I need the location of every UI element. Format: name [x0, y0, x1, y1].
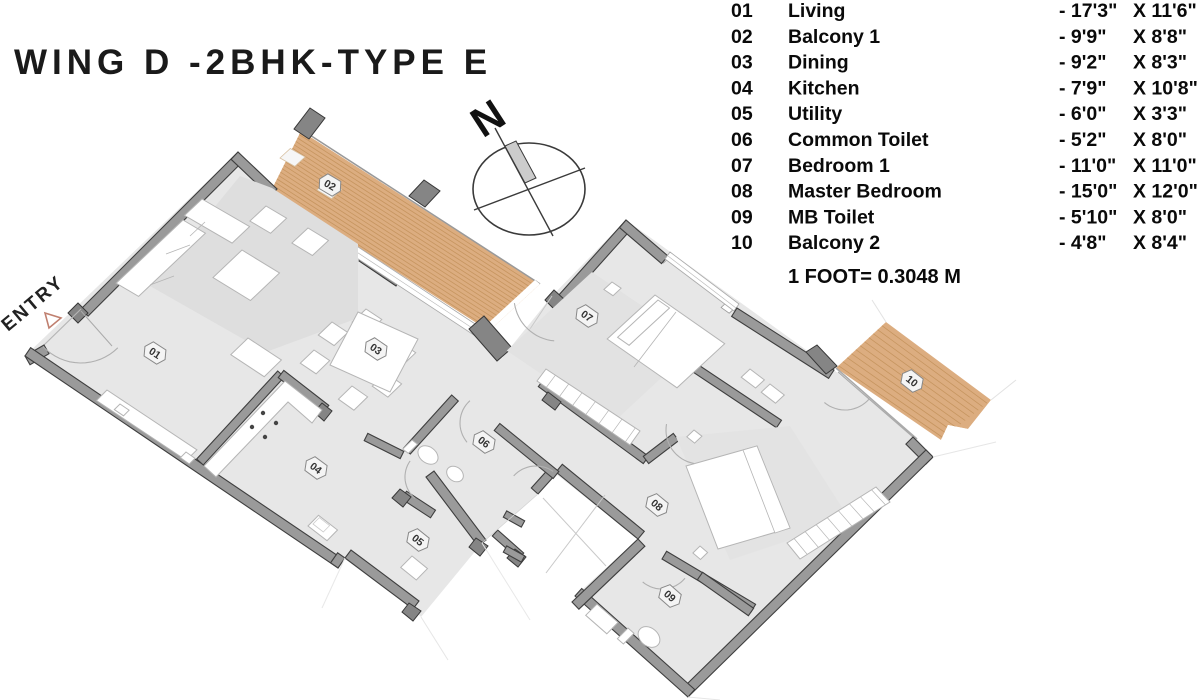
svg-text:X 8'8": X 8'8"	[1133, 26, 1187, 48]
svg-text:Dining: Dining	[788, 52, 849, 74]
svg-text:Balcony 2: Balcony 2	[788, 232, 880, 254]
svg-text:- 9'9": - 9'9"	[1059, 26, 1106, 48]
svg-text:Master Bedroom: Master Bedroom	[788, 181, 942, 203]
svg-text:03: 03	[731, 52, 753, 74]
svg-text:1 FOOT= 0.3048 M: 1 FOOT= 0.3048 M	[788, 266, 961, 288]
svg-text:08: 08	[731, 181, 753, 203]
svg-text:04: 04	[731, 77, 753, 99]
svg-text:Living: Living	[788, 0, 845, 22]
svg-text:WING D -2BHK-TYPE E: WING D -2BHK-TYPE E	[14, 43, 492, 82]
svg-text:X 8'3": X 8'3"	[1133, 52, 1187, 74]
svg-text:MB Toilet: MB Toilet	[788, 206, 875, 228]
svg-text:- 6'0": - 6'0"	[1059, 103, 1106, 125]
svg-text:X 11'0": X 11'0"	[1133, 155, 1197, 177]
svg-text:07: 07	[731, 155, 753, 177]
svg-text:Kitchen: Kitchen	[788, 77, 860, 99]
svg-text:X 12'0": X 12'0"	[1133, 181, 1198, 203]
svg-text:10: 10	[731, 232, 753, 254]
svg-text:- 5'2": - 5'2"	[1059, 129, 1106, 151]
svg-text:X 11'6": X 11'6"	[1133, 0, 1197, 22]
svg-text:05: 05	[731, 103, 753, 125]
svg-text:Bedroom 1: Bedroom 1	[788, 155, 890, 177]
svg-text:- 9'2": - 9'2"	[1059, 52, 1106, 74]
svg-text:02: 02	[731, 26, 753, 48]
svg-text:- 5'10": - 5'10"	[1059, 206, 1117, 228]
svg-text:X 8'0": X 8'0"	[1133, 129, 1187, 151]
svg-text:- 7'9": - 7'9"	[1059, 77, 1106, 99]
svg-text:X 8'0": X 8'0"	[1133, 206, 1187, 228]
svg-text:- 15'0": - 15'0"	[1059, 181, 1117, 203]
svg-text:Utility: Utility	[788, 103, 842, 125]
svg-text:- 4'8": - 4'8"	[1059, 232, 1106, 254]
svg-text:09: 09	[731, 206, 753, 228]
svg-text:Balcony 1: Balcony 1	[788, 26, 880, 48]
svg-text:06: 06	[731, 129, 753, 151]
svg-text:- 11'0": - 11'0"	[1059, 155, 1116, 177]
svg-text:X 10'8": X 10'8"	[1133, 77, 1198, 99]
svg-text:- 17'3": - 17'3"	[1059, 0, 1117, 22]
svg-text:X 8'4": X 8'4"	[1133, 232, 1187, 254]
svg-text:X 3'3": X 3'3"	[1133, 103, 1187, 125]
svg-text:01: 01	[731, 0, 753, 22]
svg-text:Common Toilet: Common Toilet	[788, 129, 929, 151]
